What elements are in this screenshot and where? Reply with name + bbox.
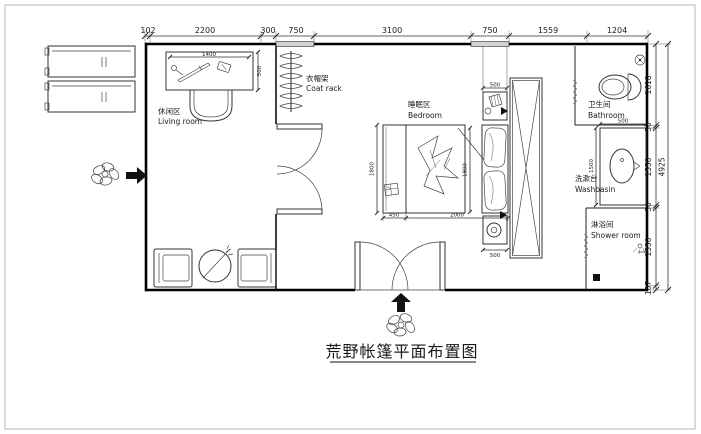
walls (145, 42, 648, 291)
lounger-bottom (45, 81, 135, 112)
bed-headboard-pillows (482, 125, 508, 213)
window-top-left (276, 42, 314, 46)
dim-basin-depth: 1500 (589, 159, 595, 173)
room-bathroom: 卫生间 Bathroom (588, 55, 645, 120)
wardrobe (510, 78, 542, 258)
toilet-icon (599, 74, 641, 100)
room-shower: 淋浴间 Shower room (591, 219, 646, 281)
room-washbasin: 500 1500 洗漱台 Washbasin (575, 119, 648, 208)
coat-rack-label-en: Coat rack (306, 84, 343, 93)
lounger-top (45, 46, 135, 77)
pen-icon (172, 63, 211, 82)
dimension-chain-top: 102 2200 300 750 3100 750 1559 1204 (140, 26, 651, 43)
book-on-bench-icon (384, 183, 398, 196)
dim-right-total-4925: 4925 (658, 157, 667, 176)
basin-icon (610, 149, 640, 183)
floor-drain-icon (635, 55, 645, 65)
floor-plan-page: 102 2200 300 750 3100 750 1559 1204 1618… (0, 0, 701, 434)
drawing-title: 荒野帐篷平面布置图 (325, 342, 478, 362)
dimension-chain-right: 1618 50 1550 50 1550 107 4925 (644, 41, 671, 295)
dim-desk-depth: 500 (257, 65, 263, 76)
dim-right-1550b: 1550 (644, 237, 653, 256)
lamp-icon (487, 223, 501, 237)
living-label-zh: 休闲区 (158, 106, 181, 116)
blanket-scribble (418, 136, 458, 194)
bed-bench (383, 125, 406, 213)
washbasin-label-en: Washbasin (575, 185, 616, 194)
armchair-right (238, 249, 276, 287)
window-top-right (471, 42, 509, 46)
room-living: 休闲区 Living room 1400 500 (154, 50, 276, 287)
outdoor-loungers (45, 46, 135, 112)
round-table (199, 245, 233, 282)
dim-basin-width: 500 (618, 119, 629, 125)
coat-rack-label-zh: 衣帽架 (306, 73, 329, 83)
dim-right-1618: 1618 (644, 75, 653, 94)
dim-right-50b: 50 (644, 202, 653, 212)
dim-top-1204: 1204 (607, 26, 627, 35)
dim-top-3100: 3100 (382, 26, 402, 35)
dim-right-107: 107 (644, 281, 653, 296)
phone-icon (217, 61, 231, 72)
dim-bed-width: 1800 (370, 162, 376, 176)
side-entry-marker (90, 162, 147, 186)
dim-top-300: 300 (260, 26, 275, 35)
room-bedroom: 睡眠区 Bedroom 450 20 (370, 78, 543, 259)
double-bed (406, 125, 484, 213)
dim-top-750a: 750 (288, 26, 303, 35)
dim-bed-bench: 450 (389, 213, 400, 219)
main-entry-marker (385, 293, 417, 337)
dim-bed-length: 2000 (450, 213, 464, 219)
dim-right-50a: 50 (644, 122, 653, 132)
shower-label-en: Shower room (591, 231, 641, 240)
shower-drain-icon (593, 274, 600, 281)
armchair-left (154, 249, 192, 287)
washbasin-label-zh: 洗漱台 (575, 173, 598, 183)
bed-dimensions: 450 2000 1800 1800 (370, 123, 511, 221)
dim-nightstand-top: 500 (490, 83, 501, 89)
entry-arrow-up-icon (391, 293, 411, 312)
bedroom-label-en: Bedroom (408, 111, 442, 120)
desk: 1400 500 (166, 50, 263, 92)
dim-right-1550a: 1550 (644, 157, 653, 176)
dim-top-102: 102 (140, 26, 155, 35)
floor-plan-drawing: 102 2200 300 750 3100 750 1559 1204 1618… (0, 0, 701, 434)
nightstand-top: 500 (481, 83, 509, 121)
bathroom-label-zh: 卫生间 (588, 99, 611, 109)
plant-icon (90, 162, 121, 186)
dim-top-1559: 1559 (538, 26, 558, 35)
dim-top-750b: 750 (482, 26, 497, 35)
shower-label-zh: 淋浴间 (591, 219, 614, 229)
decor-scribble-icon (485, 108, 491, 114)
bedroom-label-zh: 睡眠区 (408, 100, 431, 109)
entry-arrow-right-icon (126, 167, 147, 184)
entrance-double-door (355, 242, 445, 290)
dim-desk-width: 1400 (202, 52, 216, 58)
coat-rack: 衣帽架 Coat rack (280, 51, 343, 112)
interior-double-door (277, 124, 322, 214)
canvas-border (5, 5, 695, 429)
living-label-en: Living room (158, 117, 202, 126)
dim-nightstand-bottom: 500 (490, 253, 501, 259)
dim-bed-width2: 1800 (463, 163, 469, 177)
title-text: 荒野帐篷平面布置图 (325, 342, 478, 361)
dim-top-2200: 2200 (195, 26, 215, 35)
plant-icon (385, 312, 417, 336)
